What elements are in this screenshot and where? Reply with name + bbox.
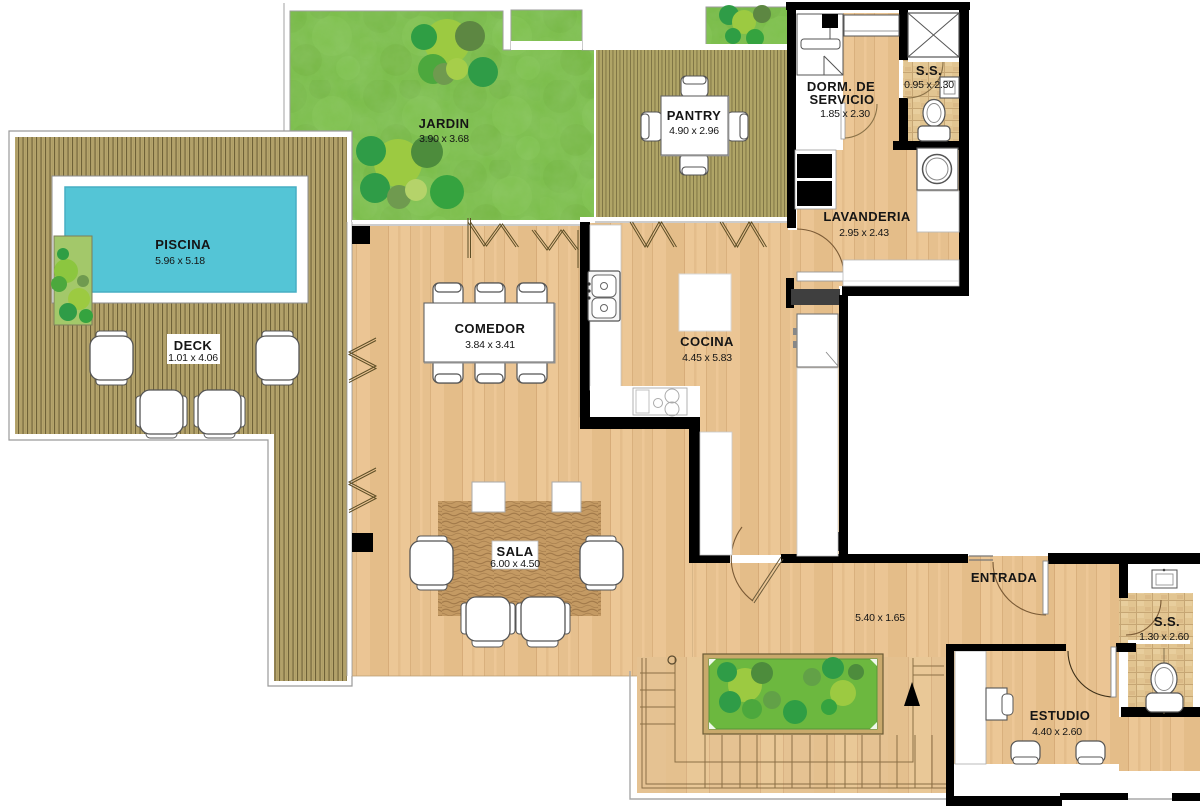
svg-text:1.85 x 2.30: 1.85 x 2.30: [820, 108, 870, 120]
svg-text:1.30 x 2.60: 1.30 x 2.60: [1139, 631, 1189, 643]
svg-text:0.95 x 2.30: 0.95 x 2.30: [904, 79, 954, 91]
svg-text:SERVICIO: SERVICIO: [809, 92, 874, 107]
svg-text:PISCINA: PISCINA: [155, 237, 211, 252]
svg-text:5.40 x 1.65: 5.40 x 1.65: [855, 612, 905, 624]
svg-text:3.90 x 3.68: 3.90 x 3.68: [419, 133, 469, 145]
svg-text:DECK: DECK: [174, 338, 213, 353]
svg-text:2.95 x 2.43: 2.95 x 2.43: [839, 227, 889, 239]
svg-text:3.84 x 3.41: 3.84 x 3.41: [465, 339, 515, 351]
svg-text:COMEDOR: COMEDOR: [455, 321, 526, 336]
svg-text:S.S.: S.S.: [916, 63, 942, 78]
svg-text:5.96 x 5.18: 5.96 x 5.18: [155, 255, 205, 267]
svg-text:S.S.: S.S.: [1154, 614, 1180, 629]
svg-text:4.90 x 2.96: 4.90 x 2.96: [669, 125, 719, 137]
svg-text:ESTUDIO: ESTUDIO: [1030, 708, 1091, 723]
svg-text:PANTRY: PANTRY: [667, 108, 721, 123]
svg-text:LAVANDERIA: LAVANDERIA: [823, 209, 911, 224]
svg-text:4.40 x 2.60: 4.40 x 2.60: [1032, 726, 1082, 738]
svg-text:ENTRADA: ENTRADA: [971, 570, 1038, 585]
svg-text:JARDIN: JARDIN: [419, 116, 470, 131]
svg-text:SALA: SALA: [497, 544, 534, 559]
svg-text:6.00 x 4.50: 6.00 x 4.50: [490, 558, 540, 570]
svg-text:4.45 x 5.83: 4.45 x 5.83: [682, 352, 732, 364]
svg-text:COCINA: COCINA: [680, 334, 734, 349]
svg-text:1.01 x 4.06: 1.01 x 4.06: [168, 352, 218, 364]
